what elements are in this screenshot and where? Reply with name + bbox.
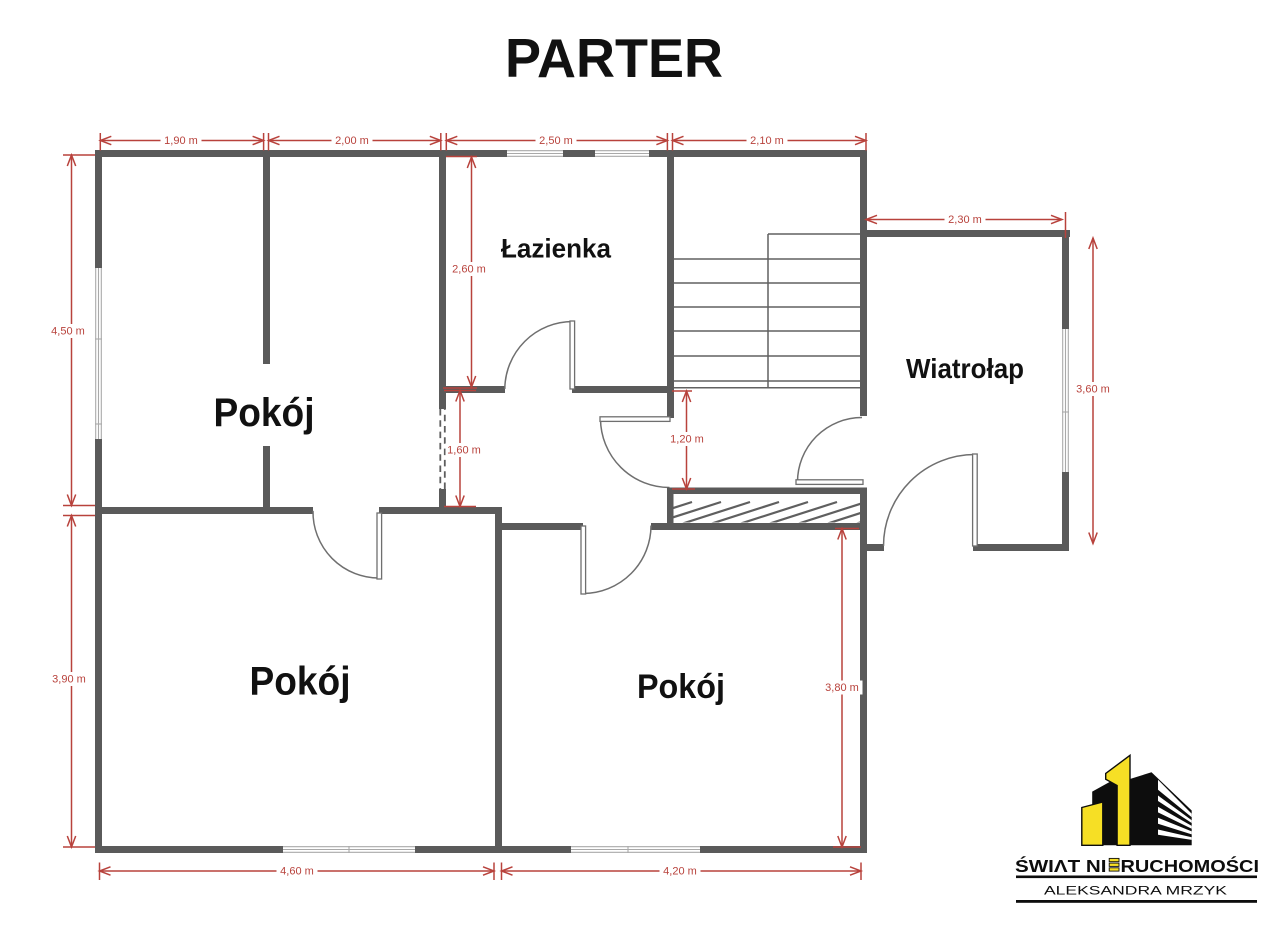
svg-text:3,60 m: 3,60 m bbox=[1076, 384, 1110, 396]
svg-text:1,20 m: 1,20 m bbox=[670, 434, 704, 446]
svg-text:ŚWIΛT NI: ŚWIΛT NI bbox=[1015, 855, 1107, 876]
svg-text:2,50 m: 2,50 m bbox=[539, 135, 573, 147]
svg-text:Łazienka: Łazienka bbox=[501, 234, 612, 264]
svg-text:PARTER: PARTER bbox=[505, 27, 723, 89]
svg-text:3,80 m: 3,80 m bbox=[825, 682, 859, 694]
svg-text:Pokój: Pokój bbox=[214, 391, 315, 435]
svg-text:4,60 m: 4,60 m bbox=[280, 866, 314, 878]
svg-text:2,10 m: 2,10 m bbox=[750, 135, 784, 147]
svg-text:2,00 m: 2,00 m bbox=[335, 135, 369, 147]
svg-text:4,20 m: 4,20 m bbox=[663, 866, 697, 878]
svg-text:Pokój: Pokój bbox=[637, 668, 725, 706]
svg-text:Pokój: Pokój bbox=[250, 660, 351, 704]
svg-text:1,60 m: 1,60 m bbox=[447, 445, 481, 457]
svg-text:4,50 m: 4,50 m bbox=[51, 326, 85, 338]
svg-text:2,60 m: 2,60 m bbox=[452, 264, 486, 276]
svg-text:ALEKSANDRA MRZYK: ALEKSANDRA MRZYK bbox=[1044, 886, 1227, 898]
svg-text:RUCHOMOŚCI: RUCHOMOŚCI bbox=[1121, 855, 1260, 876]
svg-text:2,30 m: 2,30 m bbox=[948, 214, 982, 226]
svg-text:1,90 m: 1,90 m bbox=[164, 135, 198, 147]
svg-text:3,90 m: 3,90 m bbox=[52, 674, 86, 686]
svg-text:Wiatrołap: Wiatrołap bbox=[906, 353, 1024, 384]
